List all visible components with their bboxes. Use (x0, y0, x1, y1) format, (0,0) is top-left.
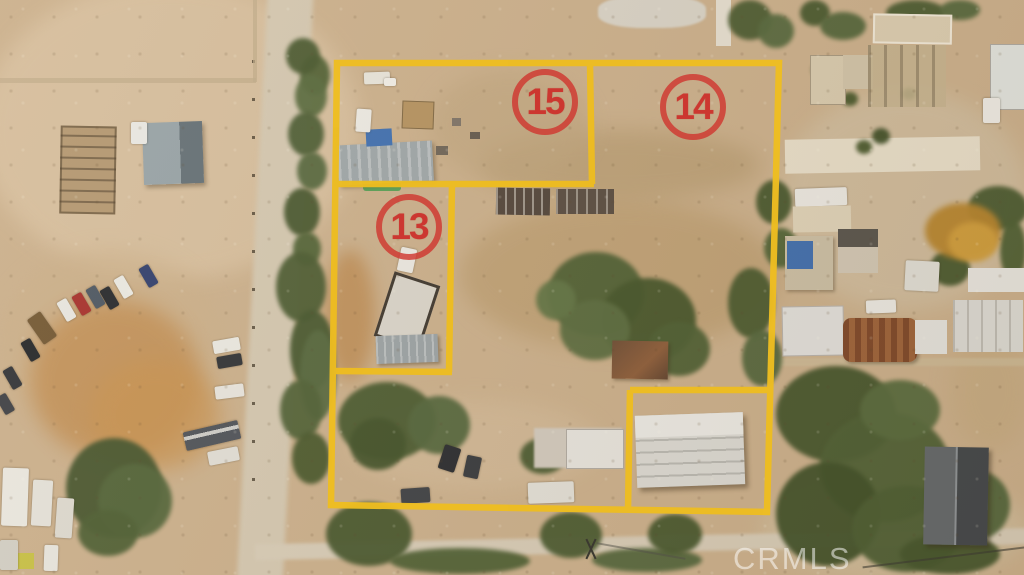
palm-tree (856, 140, 872, 154)
building-tan (810, 55, 846, 105)
parcel-number: 14 (674, 86, 711, 128)
van (866, 299, 896, 313)
rv-trailer (0, 540, 18, 570)
tree (292, 432, 330, 484)
tree (280, 380, 322, 440)
tree (78, 510, 138, 556)
warehouse-gray (337, 141, 434, 186)
debris (436, 146, 448, 155)
car (131, 122, 147, 144)
tree (756, 180, 792, 224)
crmls-watermark: CRMLS (733, 541, 852, 575)
house-rust-roof (612, 341, 669, 380)
tree (742, 330, 782, 386)
parcel-number: 13 (390, 206, 427, 248)
warehouse-roof-highlight (635, 412, 744, 437)
rv-trailer (55, 497, 75, 538)
house-dark-gable-roof (923, 446, 989, 545)
tree (860, 380, 940, 440)
tree (820, 12, 866, 40)
warehouse-white (953, 300, 1023, 352)
aerial-photo: 15 14 13 CRMLS (0, 0, 1024, 575)
building-white (566, 429, 624, 469)
tree (648, 514, 702, 554)
yard-structures (868, 45, 946, 107)
tree-row (390, 548, 530, 574)
warehouse-white (635, 412, 745, 488)
rv (904, 260, 940, 292)
tree (297, 152, 327, 190)
rv-trailer (31, 480, 53, 527)
dark-roof-section (838, 229, 878, 247)
small-lot-left (628, 390, 630, 510)
parcel-label-13: 13 (376, 194, 442, 260)
tree (288, 112, 324, 156)
parcel-label-15: 15 (512, 69, 578, 135)
burned-structure (496, 188, 550, 216)
dead-golden-tree (948, 222, 998, 262)
parcel-13-right (449, 184, 452, 372)
roof-ridge (955, 447, 959, 545)
debris (452, 118, 461, 126)
dirt-track-top (0, 78, 256, 83)
building-white (915, 320, 947, 354)
tree (728, 268, 774, 338)
building-white (968, 268, 1024, 292)
burned-structure (556, 189, 614, 214)
dirt-track-top (253, 0, 257, 82)
parcel-number: 15 (526, 81, 563, 123)
trailer (528, 481, 575, 504)
rv (795, 187, 848, 207)
frame-structure (59, 126, 117, 215)
fence-line (252, 60, 255, 510)
house-blue-tarp (785, 236, 833, 290)
van (214, 383, 244, 399)
house-gray-roof (142, 121, 204, 185)
gravel-pile (598, 0, 706, 28)
tree (408, 396, 470, 454)
building-dark-roof (838, 229, 878, 273)
rv-trailer (1, 468, 29, 527)
quonset-rust-roof (843, 318, 917, 362)
building-tan (873, 13, 953, 44)
trailer (384, 78, 396, 86)
van (983, 98, 1000, 123)
van (401, 487, 431, 504)
palm-tree (872, 128, 890, 144)
debris (470, 132, 480, 139)
van (207, 446, 240, 466)
parcel-label-14: 14 (660, 74, 726, 140)
tree (758, 14, 794, 48)
shed (402, 100, 435, 129)
tree (295, 75, 327, 117)
tree (286, 38, 320, 74)
car (216, 353, 243, 369)
blue-tarp (787, 241, 813, 269)
tree (350, 418, 406, 470)
car (0, 393, 15, 416)
rv-trailer (44, 545, 59, 571)
building-gray-roof (376, 334, 439, 364)
tree (536, 280, 576, 320)
tree (284, 188, 320, 236)
car (355, 109, 372, 133)
warehouse-white (782, 305, 845, 356)
